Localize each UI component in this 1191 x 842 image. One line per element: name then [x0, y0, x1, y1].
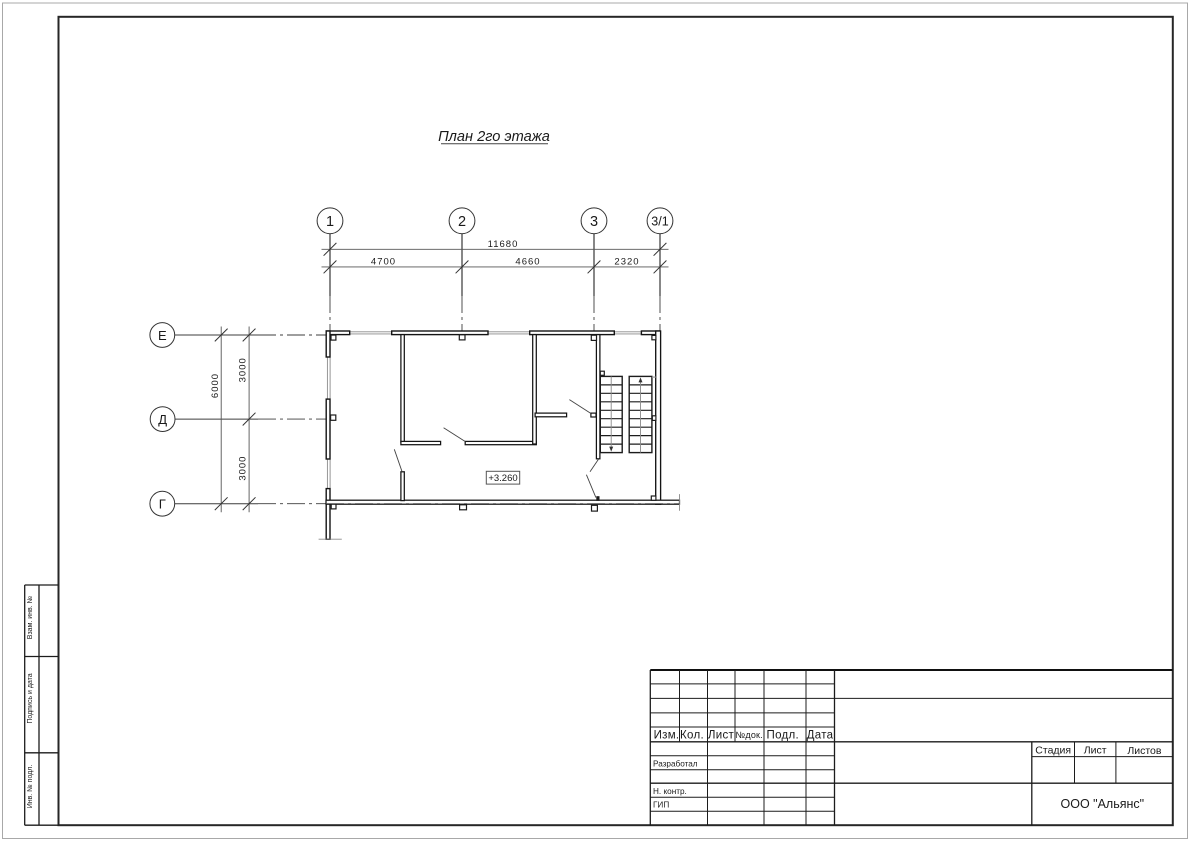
svg-text:Инв. № подл.: Инв. № подл. [27, 765, 34, 809]
svg-text:6000: 6000 [210, 373, 221, 398]
svg-text:Н. контр.: Н. контр. [653, 787, 687, 796]
svg-text:3000: 3000 [238, 357, 249, 382]
svg-text:11680: 11680 [488, 239, 519, 250]
svg-text:Е: Е [158, 328, 167, 343]
svg-text:Взам. инв. №: Взам. инв. № [27, 596, 34, 639]
svg-text:Лист: Лист [1084, 745, 1107, 757]
svg-text:Д: Д [158, 412, 167, 427]
svg-text:Подпись и дата: Подпись и дата [27, 673, 34, 723]
svg-text:№док.: №док. [736, 730, 763, 740]
svg-text:+3.260: +3.260 [488, 473, 517, 484]
svg-text:ООО "Альянс": ООО "Альянс" [1061, 797, 1145, 811]
svg-text:3/1: 3/1 [651, 214, 668, 228]
svg-text:Стадия: Стадия [1035, 745, 1071, 757]
svg-text:3: 3 [590, 214, 598, 230]
svg-text:План 2го этажа: План 2го этажа [438, 129, 550, 145]
svg-text:3000: 3000 [238, 456, 249, 481]
svg-text:Дата: Дата [807, 730, 834, 742]
svg-text:4700: 4700 [371, 256, 396, 267]
svg-text:Лист: Лист [708, 730, 735, 742]
svg-text:1: 1 [326, 214, 334, 230]
svg-text:Подл.: Подл. [767, 730, 800, 742]
svg-text:2320: 2320 [614, 256, 639, 267]
svg-text:Изм.: Изм. [654, 730, 680, 742]
svg-text:Листов: Листов [1127, 745, 1162, 757]
svg-text:Разработал: Разработал [653, 760, 698, 769]
svg-text:2: 2 [458, 214, 466, 230]
svg-text:4660: 4660 [515, 256, 540, 267]
svg-text:Г: Г [159, 497, 166, 512]
svg-text:ГИП: ГИП [653, 801, 669, 810]
svg-text:Кол.: Кол. [680, 730, 704, 742]
